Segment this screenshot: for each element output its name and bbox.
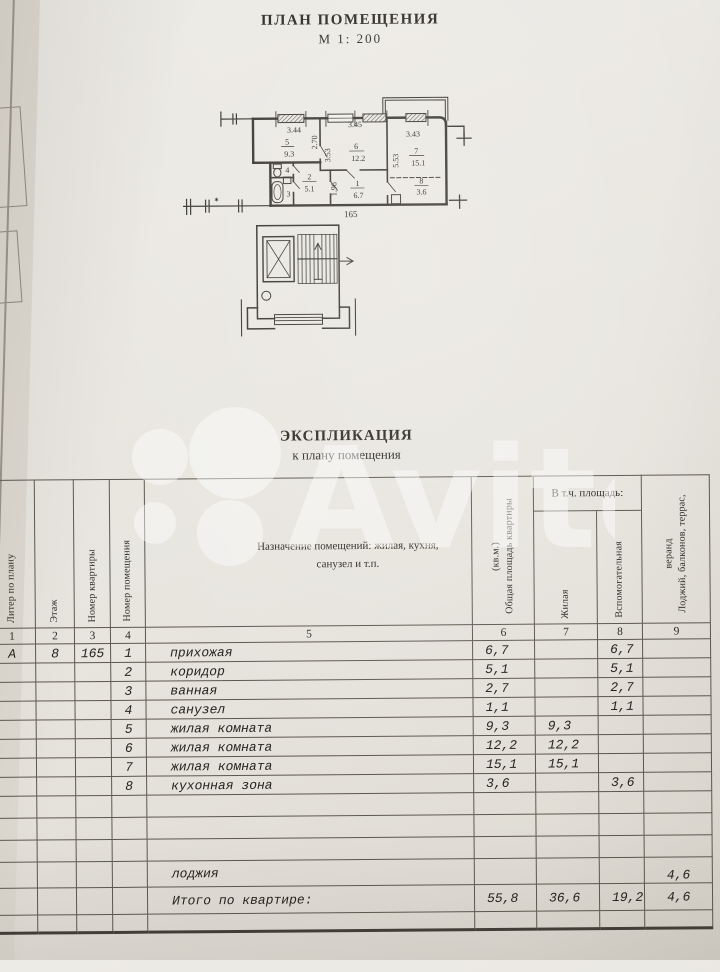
cell-total: 1,1 [473, 697, 535, 716]
cell-living [536, 773, 599, 792]
cell-aux: 6,7 [598, 639, 643, 658]
dim-room5-height: 2.70 [310, 135, 319, 149]
cell-room-number: 1 [111, 643, 146, 662]
entrance-steps [274, 314, 322, 324]
cell-loggia [643, 658, 711, 678]
col-header-liter: Литер по плану [0, 480, 35, 628]
cell-living: 36,6 [536, 884, 599, 911]
cell-total: 6,7 [473, 640, 535, 659]
plan-title: ПЛАН ПОМЕЩЕНИЯ [230, 11, 470, 30]
cell-loggia [643, 677, 711, 697]
cell-aux [598, 734, 643, 753]
dim-room6-height: 3.53 [323, 148, 332, 162]
cell-total: 12,2 [473, 735, 535, 754]
cell-room-name: жилая комната [146, 717, 473, 739]
explication-title: ЭКСПЛИКАЦИЯ [246, 427, 446, 446]
cell-floor: 8 [36, 644, 75, 663]
cell-aux: 1,1 [598, 696, 643, 715]
room6-area: 12.2 [351, 154, 365, 163]
room6-number: 6 [354, 142, 358, 151]
cell-aux: 2,7 [598, 677, 643, 696]
cell-liter: А [0, 644, 36, 663]
cell-total: 2,7 [473, 678, 535, 697]
toilet [273, 164, 281, 177]
column-number: 8 [597, 623, 642, 639]
document-page: ПЛАН ПОМЕЩЕНИЯ М 1: 200 [0, 0, 720, 963]
col-header-purpose: Назначение помещений: жилая, кухня, сану… [144, 477, 472, 628]
cell-living [535, 640, 598, 659]
kitchen-unit [392, 195, 401, 204]
star-mark: ✶ [214, 196, 220, 204]
room4-number: 4 [285, 166, 289, 175]
col-header-including: В т.ч. площадь: [533, 475, 641, 511]
column-number: 6 [472, 624, 534, 640]
wall-stub-top-left [221, 112, 253, 126]
cell-room-number: 8 [112, 776, 147, 795]
stairs [298, 234, 337, 283]
cell-room-name: лоджия [147, 859, 474, 888]
cell-aux [598, 753, 643, 772]
cell-living: 12,2 [535, 735, 598, 754]
cell-room-number: 6 [111, 738, 146, 757]
col-header-auxiliary: Вспомогательная [597, 510, 643, 623]
cell-aux: 3,6 [599, 772, 644, 791]
cell-aux: 19,2 [599, 883, 644, 910]
col-header-floor: Этаж [34, 480, 74, 628]
cell-living [535, 659, 598, 678]
cell-loggia [643, 696, 711, 716]
room8-number: 8 [419, 176, 423, 185]
cell-living: 15,1 [535, 754, 598, 773]
cell-aux [598, 715, 643, 734]
cell-living: 9,3 [535, 716, 598, 735]
cell-total: 5,1 [473, 659, 535, 678]
col-header-room: Номер помещения [109, 479, 145, 627]
cell-room-name: кухонная зона [147, 774, 474, 796]
plan-scale: М 1: 200 [230, 30, 470, 48]
explication-table: Литер по плану Этаж Номер квартиры Номер… [0, 474, 713, 935]
cell-total: 55,8 [474, 884, 536, 911]
header-row-top: Литер по плану Этаж Номер квартиры Номер… [0, 475, 709, 516]
room7-number: 7 [414, 147, 418, 156]
room5-area: 9.3 [284, 150, 294, 159]
cell-loggia [644, 772, 712, 792]
wall-stub-right [448, 126, 472, 208]
cell-room-name: жилая комната [146, 736, 473, 758]
col-header-flat: Номер квартиры [73, 479, 110, 627]
cell-loggia: 4,6 [644, 883, 712, 911]
cell-room-number: 3 [111, 681, 146, 700]
apartment-number: 165 [344, 209, 358, 219]
garbage-chute [262, 291, 271, 300]
bathtub [272, 182, 283, 203]
cell-room-name: жилая комната [146, 755, 473, 777]
room7-area: 15.1 [411, 158, 425, 167]
col-header-loggia: Лоджий, балконов, террас, веранд [641, 475, 710, 624]
cell-room-number: 4 [111, 700, 146, 719]
room1-area: 6.7 [353, 191, 363, 200]
cell-room-name: коридор [146, 660, 473, 682]
column-number: 1 [0, 628, 36, 644]
cell-room-number: 5 [111, 719, 146, 738]
cell-total: 9,3 [473, 716, 535, 735]
room5-number: 5 [285, 138, 289, 147]
cell-loggia: 4,6 [644, 857, 712, 884]
cell-living [535, 678, 598, 697]
dim-room5-width: 3.44 [287, 125, 301, 134]
column-number: 4 [110, 627, 145, 643]
floor-plan-drawing: 3.44 2.70 5 9.3 3.45 3.53 6 12.2 3.43 5.… [178, 84, 475, 351]
cell-room-number: 7 [111, 757, 146, 776]
cell-aux: 5,1 [598, 658, 643, 677]
col-header-living: Жилая [534, 511, 598, 624]
party-wall-left [184, 199, 271, 215]
cell-loggia [643, 639, 711, 659]
elevator-shaft [263, 237, 294, 282]
col-header-total-area: Общая площадь квартиры (кв.м.) [471, 476, 534, 624]
cell-total: 3,6 [474, 773, 536, 792]
room8-area: 3.6 [416, 187, 426, 196]
cell-loggia [643, 753, 711, 773]
dim-room6-width: 3.45 [348, 120, 362, 129]
explication-subtitle: к плану помещения [246, 446, 446, 464]
room2-number: 2 [307, 172, 311, 181]
cell-room-number: 2 [111, 662, 146, 681]
dim-room1-height: 1.96 [329, 182, 338, 196]
cell-living [535, 697, 598, 716]
cell-flat: 165 [75, 643, 111, 662]
cell-loggia [643, 715, 711, 735]
dim-room7-width: 3.43 [406, 130, 420, 139]
dim-room7-height: 5.53 [391, 154, 400, 168]
cell-room-name: ванная [146, 679, 473, 701]
cell-room-name: прихожая [146, 641, 473, 663]
room1-number: 1 [355, 179, 359, 188]
column-number: 9 [642, 623, 710, 640]
room3-number: 3 [286, 190, 290, 199]
cell-total-label: Итого по квартире: [147, 885, 474, 915]
room2-area: 5.1 [304, 184, 314, 193]
column-number: 3 [74, 627, 110, 643]
column-number: 7 [534, 624, 597, 640]
cell-room-name: санузел [146, 698, 473, 720]
column-number: 2 [35, 628, 74, 644]
entry-arrow [340, 258, 353, 265]
cell-loggia [643, 734, 711, 754]
cell-total: 15,1 [473, 754, 535, 773]
